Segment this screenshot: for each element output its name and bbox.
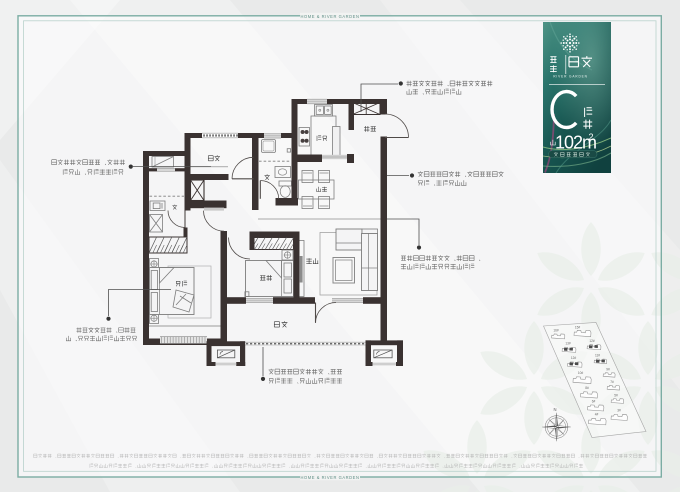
svg-text:15#: 15# bbox=[575, 326, 581, 330]
svg-text:11#: 11# bbox=[595, 354, 600, 358]
svg-text:HOME & RIVER GARDEN: HOME & RIVER GARDEN bbox=[301, 475, 360, 480]
svg-text:7#: 7# bbox=[610, 380, 614, 384]
svg-text:4#: 4# bbox=[595, 413, 599, 417]
svg-text:10#: 10# bbox=[578, 371, 584, 375]
svg-text:8#: 8# bbox=[585, 386, 589, 390]
svg-text:16#: 16# bbox=[553, 328, 559, 332]
svg-text:3#: 3# bbox=[617, 409, 621, 413]
svg-text:6#: 6# bbox=[592, 399, 596, 403]
svg-text:12#: 12# bbox=[589, 339, 595, 343]
svg-text:12#: 12# bbox=[571, 356, 577, 360]
svg-text:13#: 13# bbox=[565, 342, 571, 346]
svg-text:2: 2 bbox=[589, 132, 594, 142]
svg-text:RIVER GARDEN: RIVER GARDEN bbox=[553, 75, 587, 79]
svg-text:9#: 9# bbox=[606, 368, 610, 372]
svg-text:HOME & RIVER GARDEN: HOME & RIVER GARDEN bbox=[301, 14, 360, 19]
svg-text:5#: 5# bbox=[614, 394, 618, 398]
svg-text:N: N bbox=[554, 407, 557, 412]
